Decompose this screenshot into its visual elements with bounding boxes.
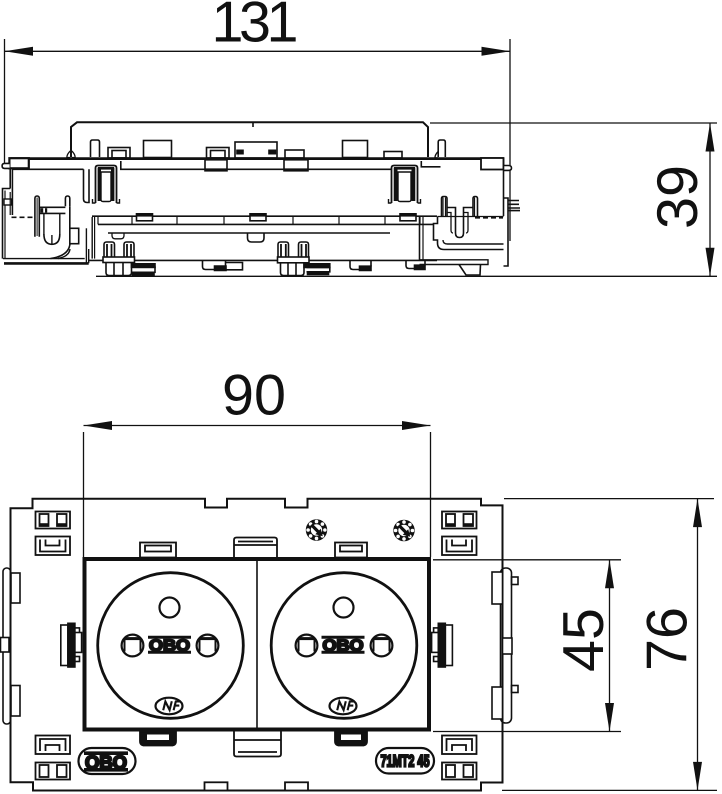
svg-text:45: 45 xyxy=(552,608,616,672)
svg-text:OBO: OBO xyxy=(322,638,363,655)
svg-text:71MT2 45: 71MT2 45 xyxy=(380,752,429,770)
svg-text:90: 90 xyxy=(222,364,286,428)
svg-text:OBO: OBO xyxy=(149,638,190,655)
svg-text:OBO: OBO xyxy=(85,752,127,773)
svg-text:76: 76 xyxy=(636,607,700,671)
svg-text:131: 131 xyxy=(212,0,299,55)
svg-text:39: 39 xyxy=(646,165,710,229)
